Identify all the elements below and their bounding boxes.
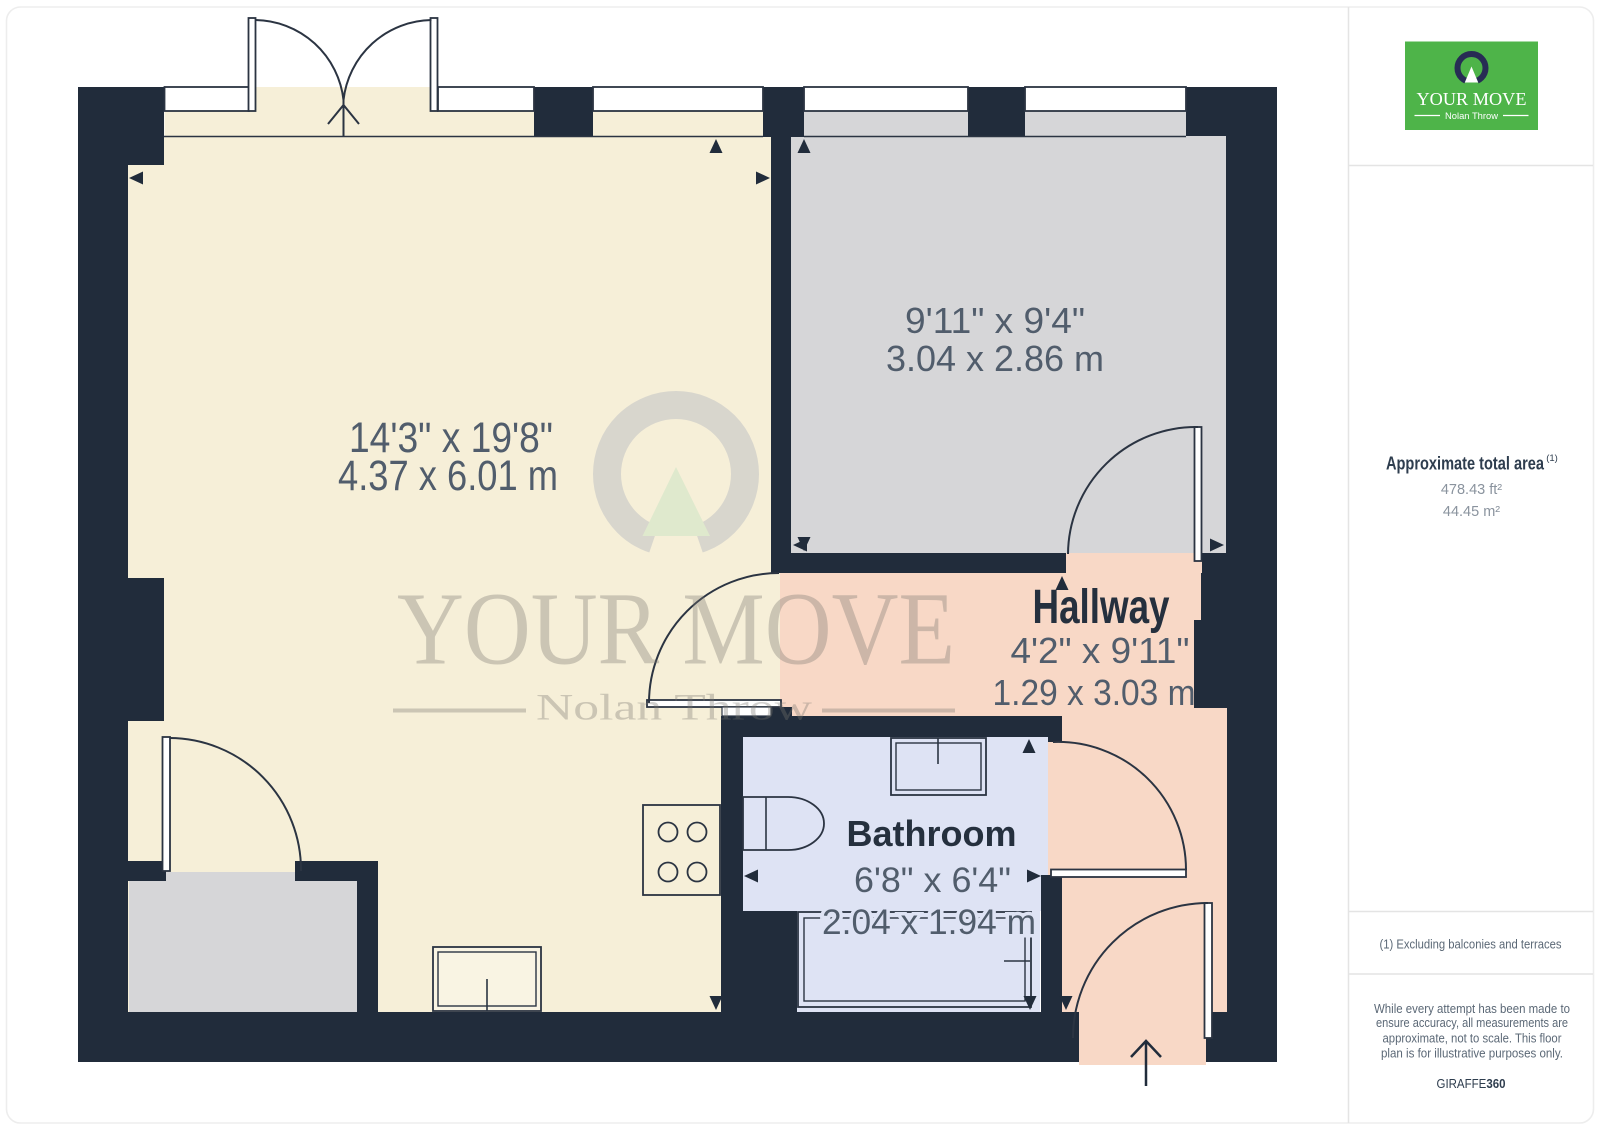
svg-text:YOUR MOVE: YOUR MOVE	[1417, 89, 1527, 109]
svg-text:9'11" x 9'4": 9'11" x 9'4"	[905, 300, 1085, 341]
svg-text:Nolan Throw: Nolan Throw	[536, 688, 812, 729]
svg-text:44.45 m²: 44.45 m²	[1443, 504, 1500, 520]
svg-text:Hallway: Hallway	[1033, 581, 1170, 634]
svg-text:Approximate total area: Approximate total area	[1386, 454, 1545, 474]
svg-text:2.04 x 1.94 m: 2.04 x 1.94 m	[822, 903, 1036, 942]
svg-text:4.37 x 6.01 m: 4.37 x 6.01 m	[338, 452, 558, 500]
svg-text:(1): (1)	[1546, 453, 1558, 464]
svg-text:GIRAFFE360: GIRAFFE360	[1437, 1077, 1506, 1091]
svg-text:3.04 x 2.86 m: 3.04 x 2.86 m	[886, 338, 1104, 379]
svg-text:Nolan Throw: Nolan Throw	[1445, 111, 1498, 122]
svg-text:Bathroom: Bathroom	[847, 813, 1017, 854]
svg-text:6'8" x 6'4": 6'8" x 6'4"	[854, 861, 1011, 900]
svg-text:478.43 ft²: 478.43 ft²	[1441, 482, 1502, 498]
svg-text:ensure accuracy, all measureme: ensure accuracy, all measurements are	[1376, 1015, 1568, 1030]
svg-text:YOUR MOVE: YOUR MOVE	[397, 572, 955, 687]
svg-text:approximate, not to scale. Thi: approximate, not to scale. This floor	[1383, 1030, 1563, 1045]
svg-text:While every attempt has been m: While every attempt has been made to	[1374, 1001, 1570, 1016]
svg-text:1.29 x 3.03 m: 1.29 x 3.03 m	[993, 672, 1196, 713]
svg-text:4'2" x 9'11": 4'2" x 9'11"	[1011, 630, 1190, 671]
svg-text:(1) Excluding balconies and te: (1) Excluding balconies and terraces	[1380, 937, 1562, 952]
svg-text:plan is for illustrative purpo: plan is for illustrative purposes only.	[1381, 1045, 1563, 1060]
